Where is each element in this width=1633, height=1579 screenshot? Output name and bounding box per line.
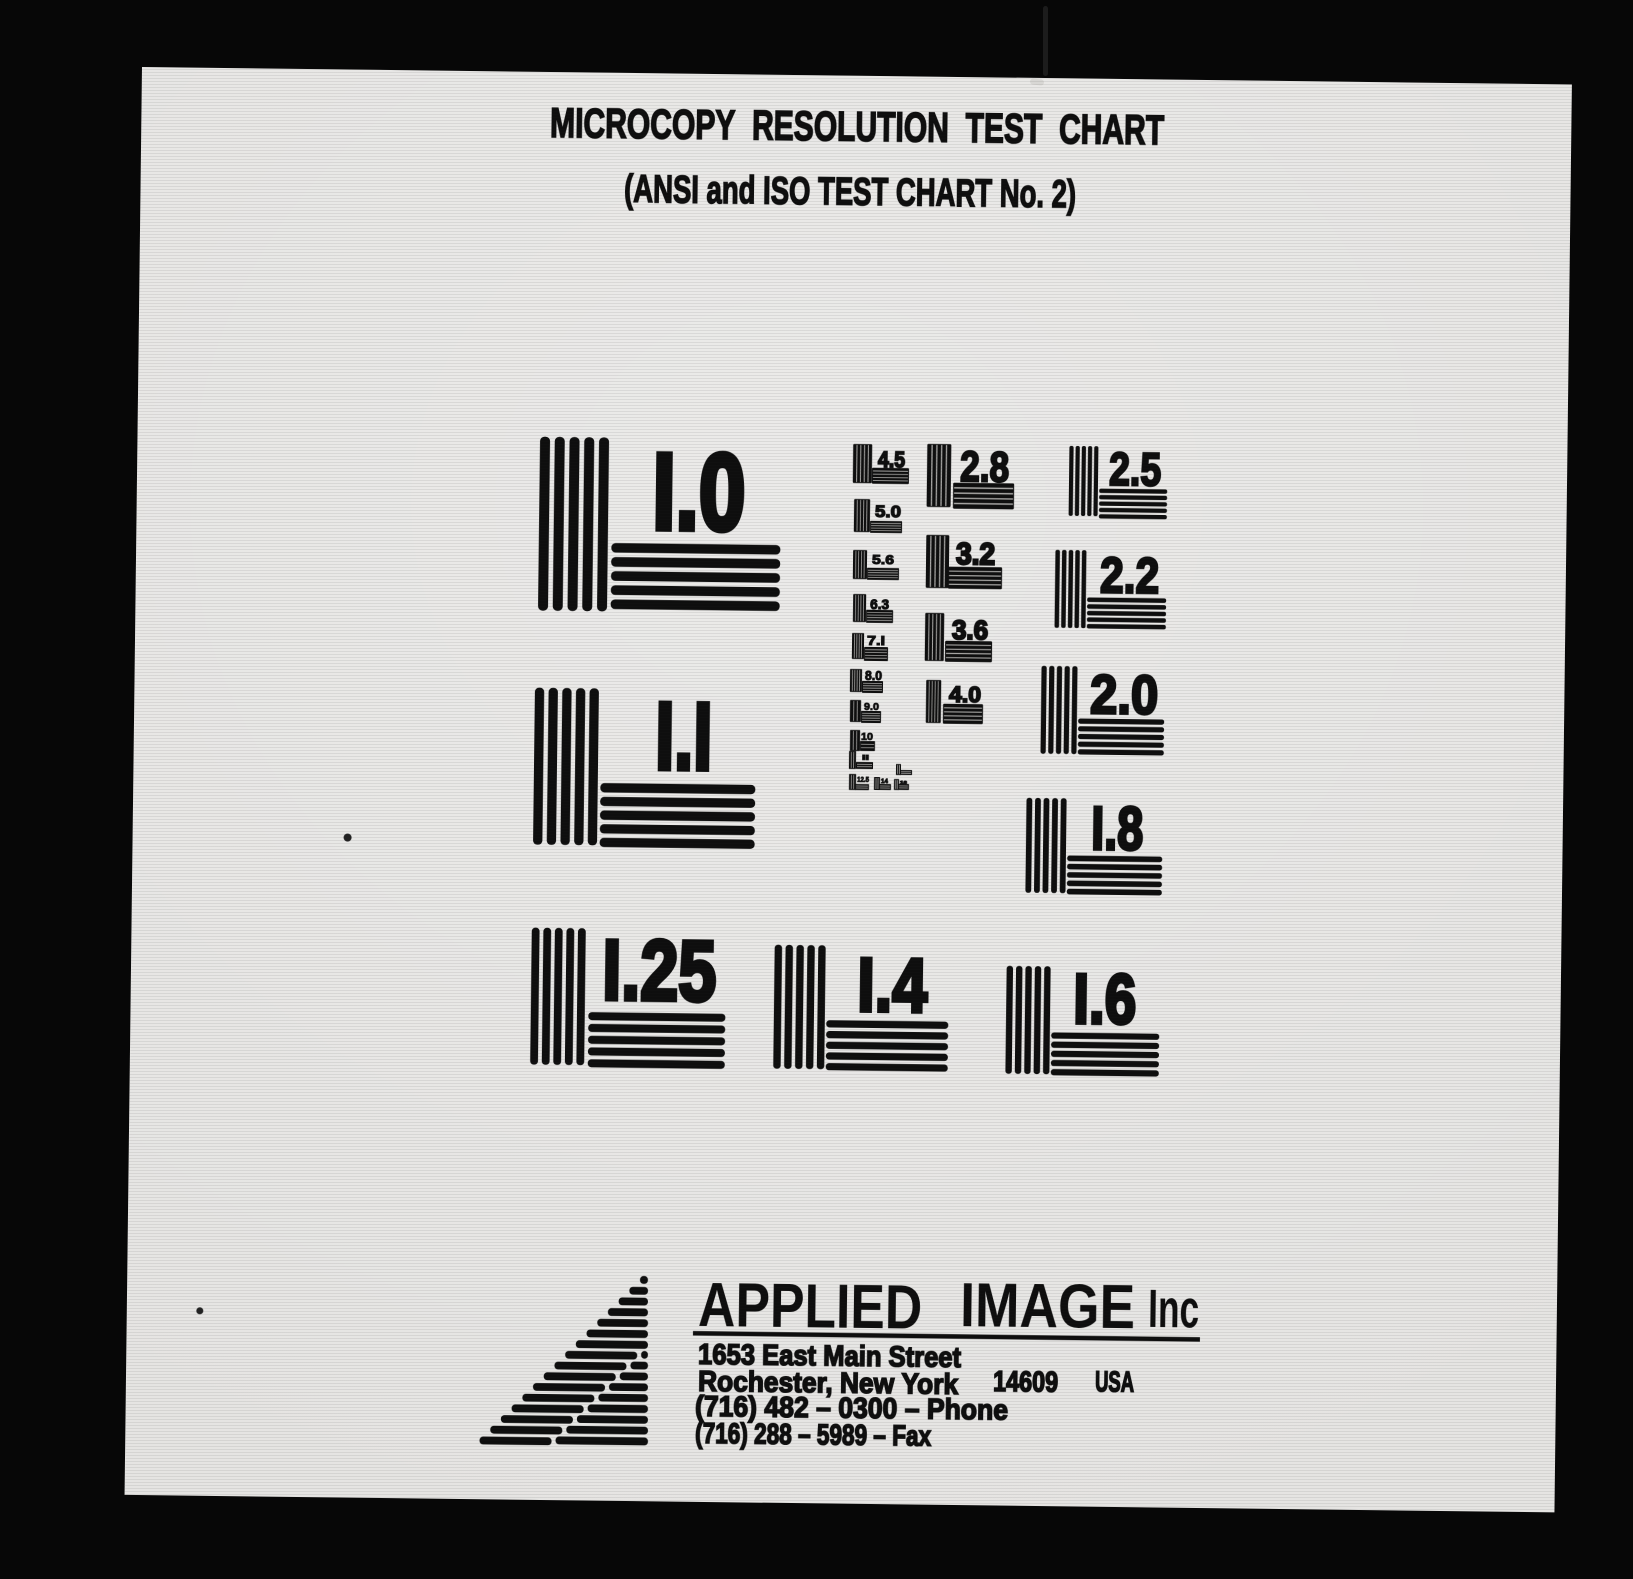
svg-text:(716) 288 – 5989 – Fax: (716) 288 – 5989 – Fax [695,1418,931,1453]
svg-text:Inc: Inc [1148,1279,1200,1340]
svg-text:7.I: 7.I [867,633,885,648]
svg-text:I.25: I.25 [602,923,717,1019]
svg-text:4.5: 4.5 [878,447,905,472]
svg-text:3.2: 3.2 [956,536,995,571]
svg-text:I.0: I.0 [652,431,746,554]
svg-text:I.6: I.6 [1073,959,1137,1039]
svg-text:3.6: 3.6 [952,615,988,645]
svg-text:2.0: 2.0 [1090,664,1159,726]
svg-text:4.0: 4.0 [949,682,981,707]
svg-text:II: II [862,753,869,762]
svg-text:12.5: 12.5 [857,775,869,784]
svg-text:9.0: 9.0 [864,702,879,713]
svg-text:IMAGE: IMAGE [960,1271,1136,1342]
svg-text:2.2: 2.2 [1100,546,1160,604]
svg-text:5.6: 5.6 [872,552,894,567]
svg-text:I.8: I.8 [1091,794,1144,863]
svg-text:16: 16 [900,780,908,785]
svg-text:6.3: 6.3 [870,596,889,612]
svg-text:2.8: 2.8 [960,444,1010,492]
svg-text:5.0: 5.0 [875,502,901,521]
svg-text:I.4: I.4 [857,943,928,1029]
svg-text:I.I: I.I [655,683,713,791]
svg-text:MICROCOPY RESOLUTION TEST C: MICROCOPY RESOLUTION TEST CHART [550,99,1165,154]
svg-text:2.5: 2.5 [1109,443,1162,496]
svg-text:14: 14 [881,779,889,785]
svg-text:10: 10 [861,732,873,743]
svg-text:(ANSI and ISO TEST CHART No. 2: (ANSI and ISO TEST CHART No. 2) [624,168,1076,217]
svg-text:8.0: 8.0 [865,668,882,683]
